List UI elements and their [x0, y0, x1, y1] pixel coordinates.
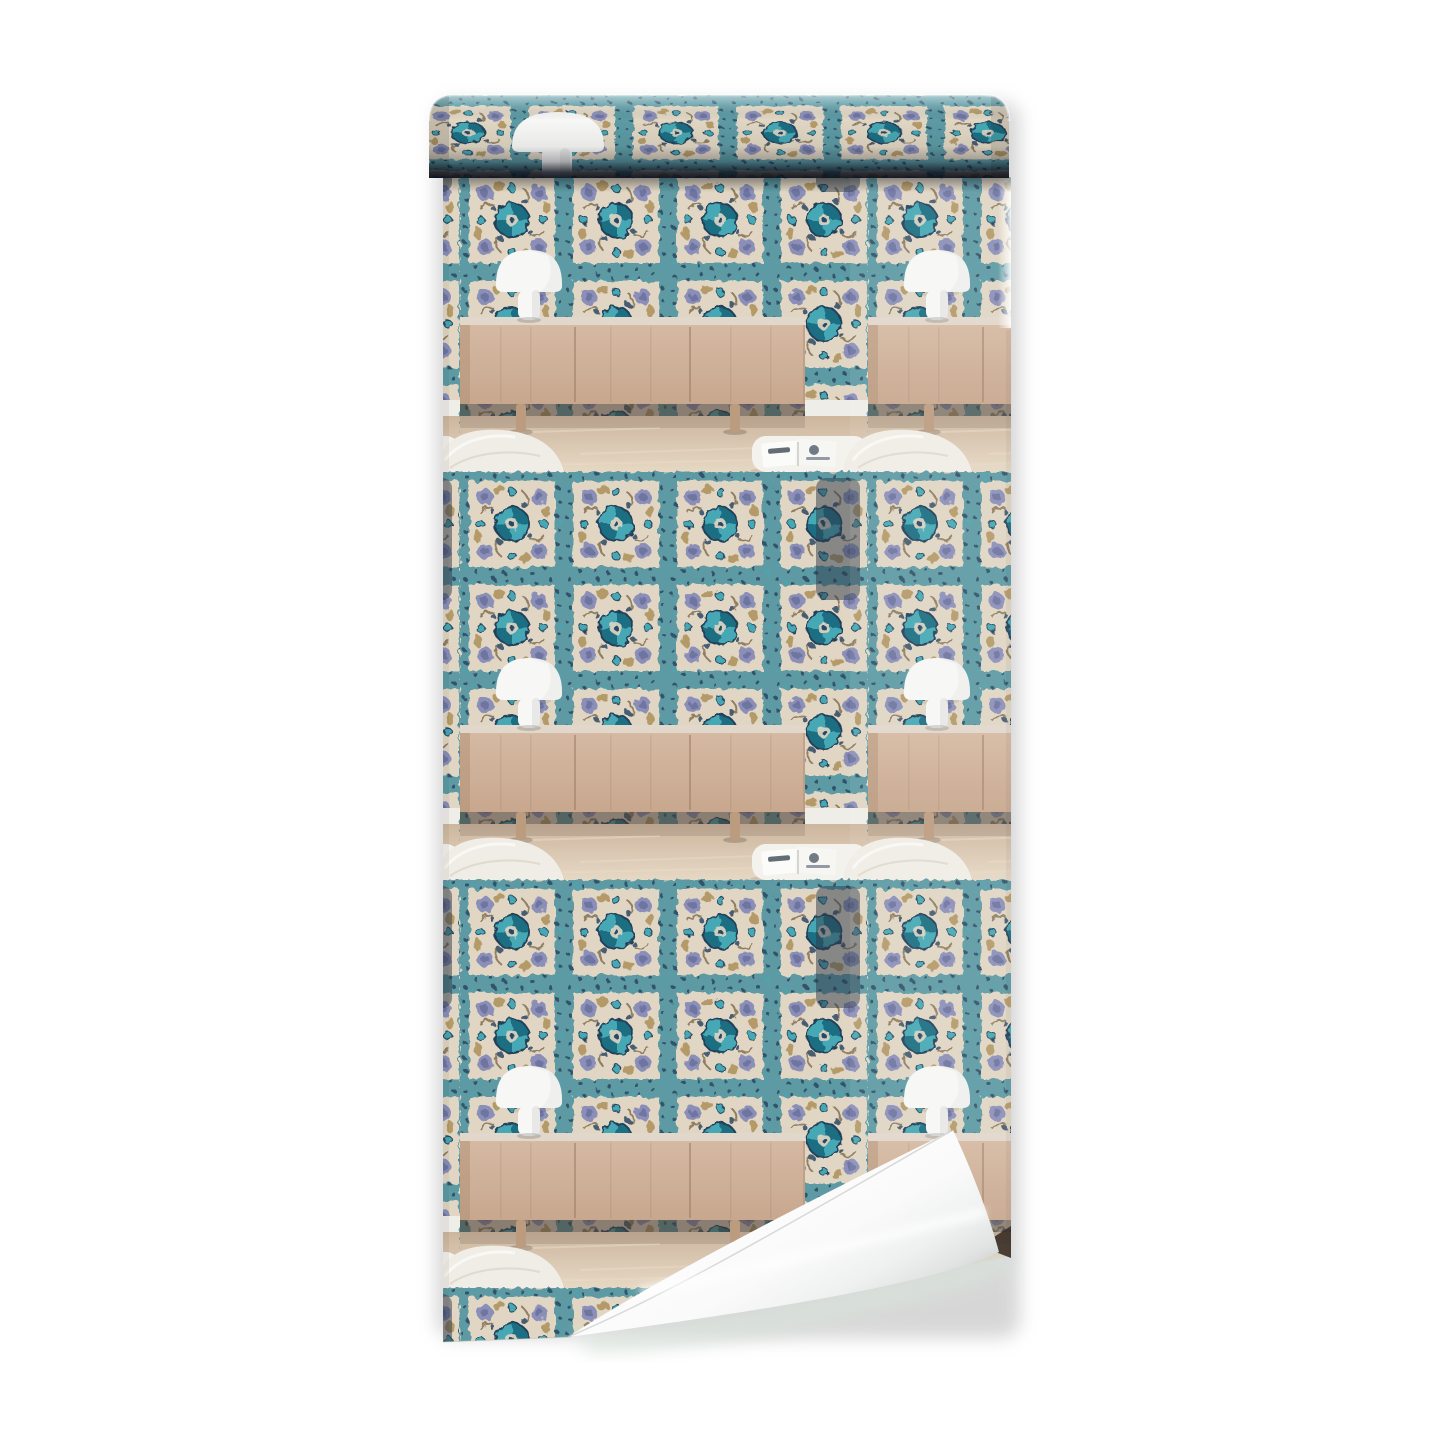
roll-cast-shadow — [443, 178, 1011, 192]
wallpaper-mockup-image — [0, 0, 1445, 1445]
wallpaper-sheet — [27, 64, 1278, 1445]
mockup-stage — [0, 0, 1445, 1445]
left-edge-shade — [443, 177, 449, 1342]
right-edge-shade — [1006, 330, 1011, 1260]
right-edge-highlight — [998, 178, 1011, 328]
wallpaper-roll — [429, 92, 1011, 182]
